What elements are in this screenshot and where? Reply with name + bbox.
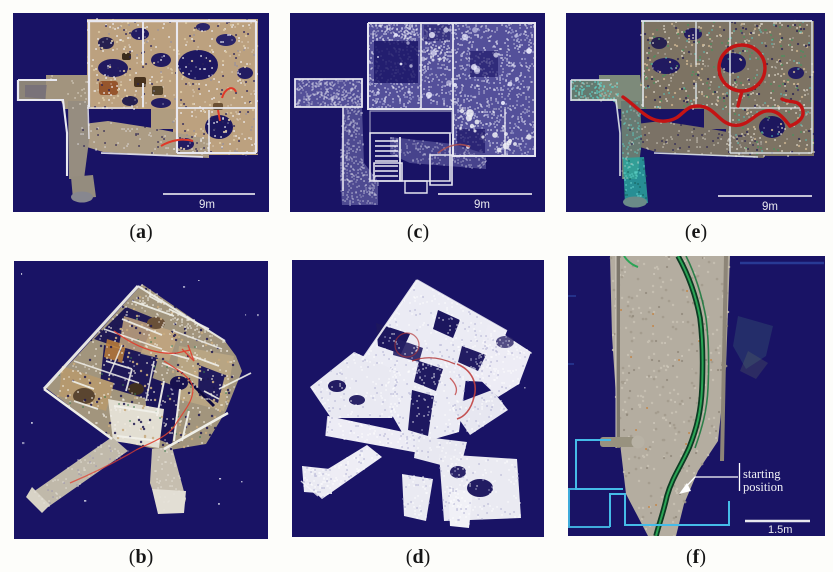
svg-text:9m: 9m: [199, 199, 215, 211]
svg-text:1.5m: 1.5m: [768, 524, 792, 536]
svg-text:position: position: [743, 480, 784, 494]
svg-text:9m: 9m: [762, 201, 778, 212]
svg-text:9m: 9m: [474, 199, 490, 211]
svg-text:starting: starting: [743, 467, 781, 481]
